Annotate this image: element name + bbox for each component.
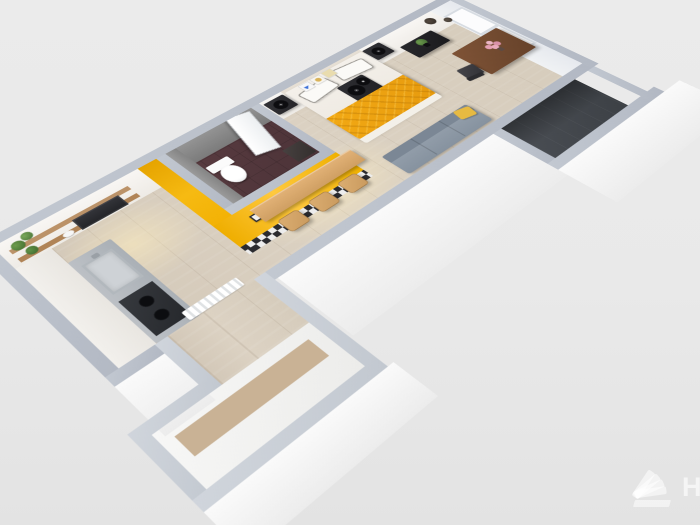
scene-3d — [0, 0, 700, 525]
apartment-floorplan — [0, 0, 700, 525]
render-viewport: HOM — [0, 0, 700, 525]
airplane-glyph — [304, 85, 311, 89]
watermark-text: HOM — [682, 472, 700, 503]
watermark: HOM — [633, 467, 700, 507]
homestyler-fan-logo-icon — [633, 467, 673, 507]
gold-circle-glyph — [314, 77, 323, 82]
